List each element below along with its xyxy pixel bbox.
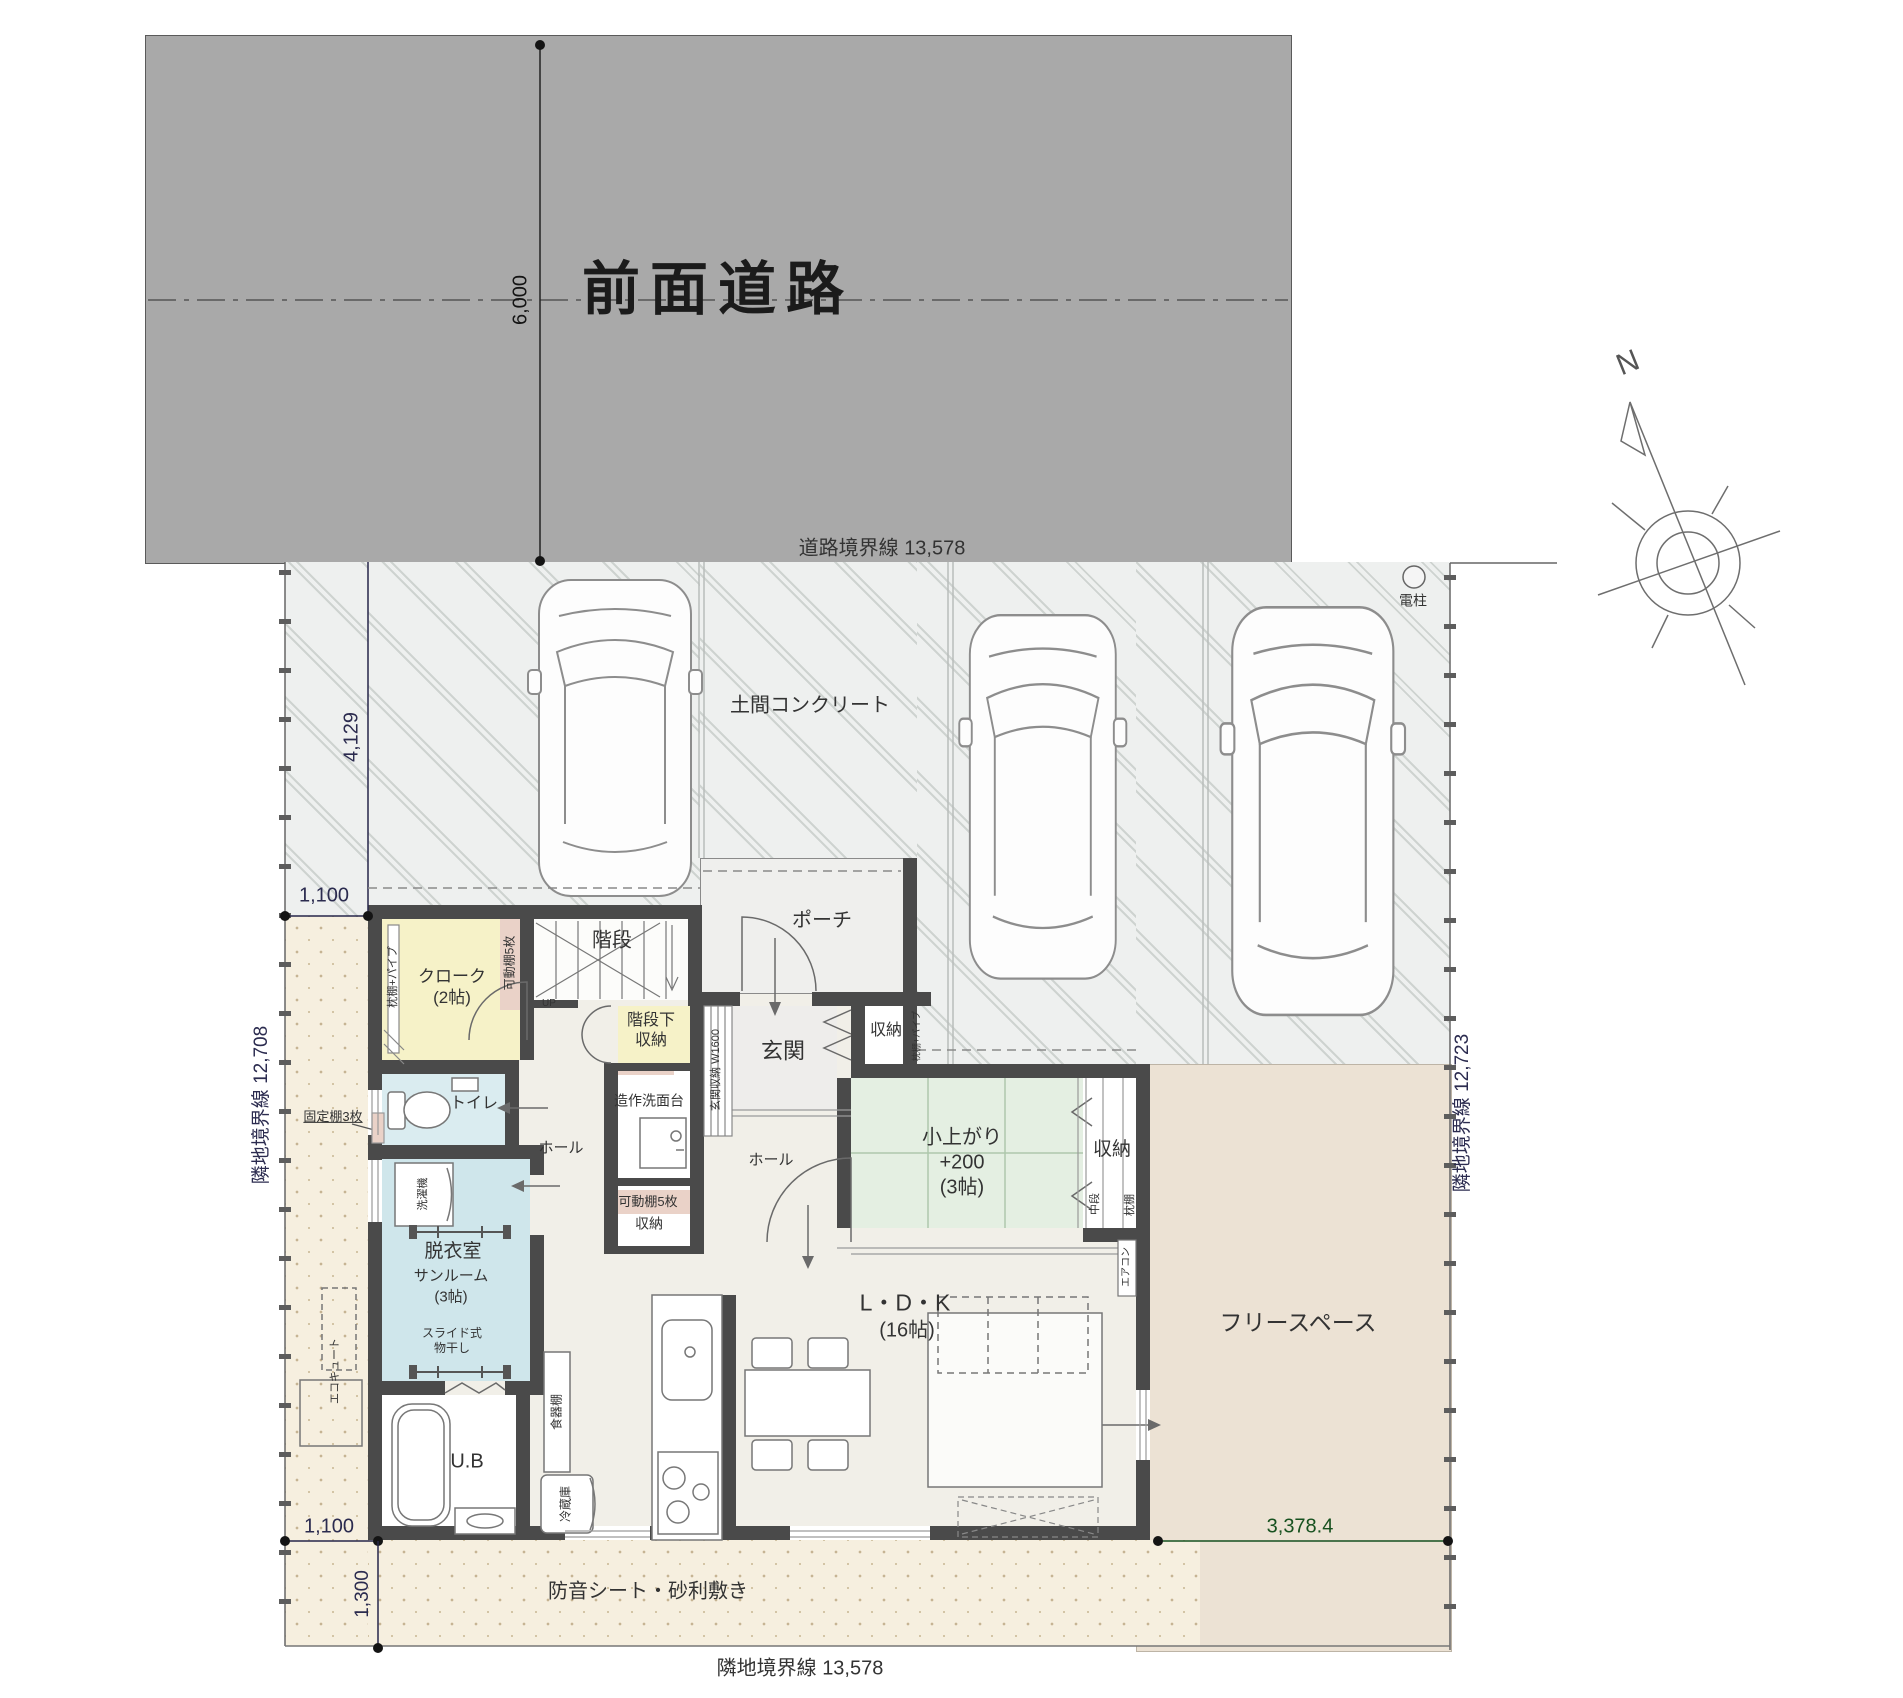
- utility-pole: [1403, 566, 1425, 588]
- gravel-label: 防音シート・砂利敷き: [548, 1580, 748, 1605]
- cloak-shelf-label: 枕棚+パイプ: [387, 946, 401, 1007]
- side-bottom-dim: 1,100: [304, 1515, 354, 1540]
- tatami-label: 小上がり +200 (3帖): [922, 1126, 1002, 1201]
- dining-set: [745, 1338, 870, 1470]
- fridge-label: 冷蔵庫: [559, 1486, 574, 1522]
- dressing-label: 脱衣室: [424, 1240, 481, 1264]
- tatami-storage-label: 収納: [1093, 1138, 1131, 1162]
- cloak-label: クローク (2帖): [418, 966, 486, 1009]
- toilet-label: トイレ: [450, 1094, 498, 1114]
- road-width-dimension: [535, 40, 545, 566]
- sunroom-label: サンルーム: [414, 1268, 489, 1287]
- porch-label: ポーチ: [792, 909, 852, 934]
- pole-label: 電柱: [1399, 592, 1427, 610]
- washstand-basin: [640, 1118, 686, 1168]
- tatami-shelf-label: 枕棚: [1124, 1194, 1138, 1216]
- movable-storage-label: 収納: [635, 1215, 663, 1233]
- site-plan: 前面道路 道路境界線 13,578 6,000 土間コンクリート 電柱 4,12…: [0, 0, 1903, 1698]
- right-boundary-label: 隣地境界線 12,723: [1451, 1034, 1475, 1192]
- parking-label: 土間コンクリート: [730, 694, 890, 719]
- folding-table: [958, 1497, 1098, 1537]
- car-2: [959, 615, 1126, 978]
- entrance-cabinet-label: 玄関収納 W1600: [710, 1029, 724, 1111]
- hall2-label: ホール: [748, 1152, 793, 1171]
- road-width-dim: 6,000: [509, 275, 534, 325]
- stairs-label: 階段: [592, 929, 632, 954]
- side-top-dim: 1,100: [299, 884, 349, 909]
- fixed-shelf-label: 固定棚3枚: [303, 1109, 362, 1125]
- stairs-up-label: UP: [542, 998, 556, 1011]
- ldk-size-label: (16帖): [879, 1319, 935, 1344]
- left-boundary-label: 隣地境界線 12,708: [250, 1026, 274, 1184]
- tatami-mid-label: 中段: [1089, 1193, 1103, 1215]
- compass: [1598, 402, 1780, 685]
- entrance-label: 玄関: [761, 1037, 805, 1065]
- slide-rack-label: スライド式 物干し: [422, 1326, 482, 1356]
- cloak-movable-label: 可動棚5枚: [503, 936, 518, 991]
- car-3: [1221, 607, 1405, 1015]
- bottom-boundary-label: 隣地境界線 13,578: [717, 1657, 884, 1682]
- linework-overlay: [0, 0, 1903, 1698]
- movable-storage-shelf-label: 可動棚5枚: [618, 1194, 677, 1210]
- bath-label: U.B: [450, 1450, 483, 1475]
- front-road-label: 前面道路: [582, 254, 854, 327]
- car-1: [528, 580, 702, 896]
- entrance-storage-label: 収納: [870, 1021, 902, 1041]
- kitchen-fixtures: [652, 1295, 722, 1540]
- free-space-width-dim: 3,378.4: [1267, 1515, 1334, 1540]
- under-stairs-label: 階段下 収納: [627, 1011, 675, 1051]
- ldk-label: L・D・K: [860, 1289, 951, 1318]
- washstand-label: 造作洗面台: [614, 1092, 684, 1110]
- gravel-depth-dim: 1,300: [351, 1570, 375, 1618]
- hall1-label: ホール: [538, 1140, 583, 1159]
- free-space-label: フリースペース: [1219, 1309, 1376, 1338]
- ecocute-label: エコキュート: [329, 1338, 343, 1404]
- aircon-label: エアコン: [1121, 1247, 1134, 1287]
- bed: [928, 1297, 1102, 1487]
- sunroom-size-label: (3帖): [434, 1289, 467, 1308]
- setback-dim: 4,129: [340, 712, 365, 762]
- cupboard-label: 食器棚: [550, 1394, 565, 1430]
- entrance-storage-shelf-label: 枕棚+パイプ: [911, 1011, 922, 1061]
- washer-label: 洗濯機: [417, 1178, 431, 1211]
- road-boundary-label: 道路境界線 13,578: [799, 537, 966, 562]
